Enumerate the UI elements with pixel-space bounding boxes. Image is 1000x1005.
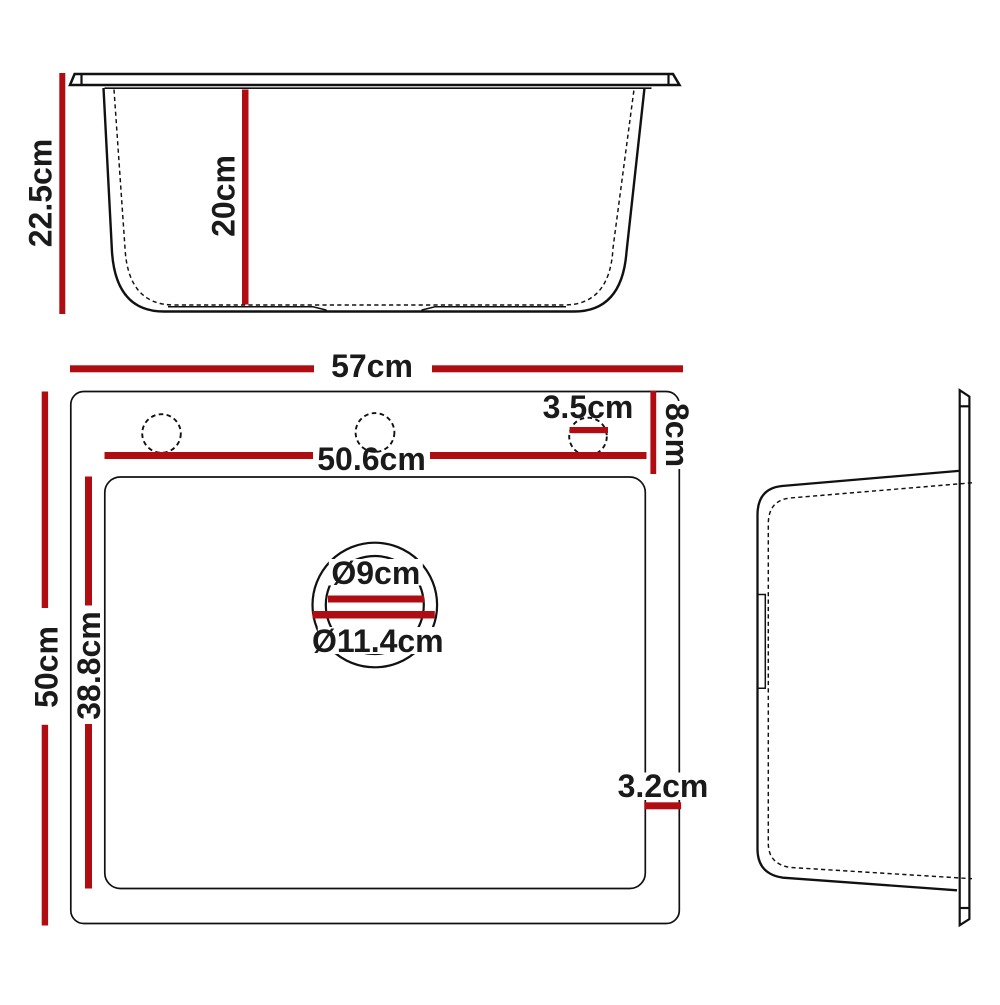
svg-text:22.5cm: 22.5cm <box>23 139 59 248</box>
svg-text:Ø9cm: Ø9cm <box>331 555 420 591</box>
svg-text:57cm: 57cm <box>331 348 413 384</box>
svg-text:38.8cm: 38.8cm <box>71 611 107 720</box>
svg-text:50cm: 50cm <box>28 626 64 708</box>
svg-text:50.6cm: 50.6cm <box>317 441 426 477</box>
svg-text:20cm: 20cm <box>206 155 242 237</box>
svg-text:3.5cm: 3.5cm <box>543 389 634 425</box>
svg-text:Ø11.4cm: Ø11.4cm <box>312 623 444 659</box>
svg-text:8cm: 8cm <box>659 403 695 467</box>
svg-text:3.2cm: 3.2cm <box>618 768 709 804</box>
